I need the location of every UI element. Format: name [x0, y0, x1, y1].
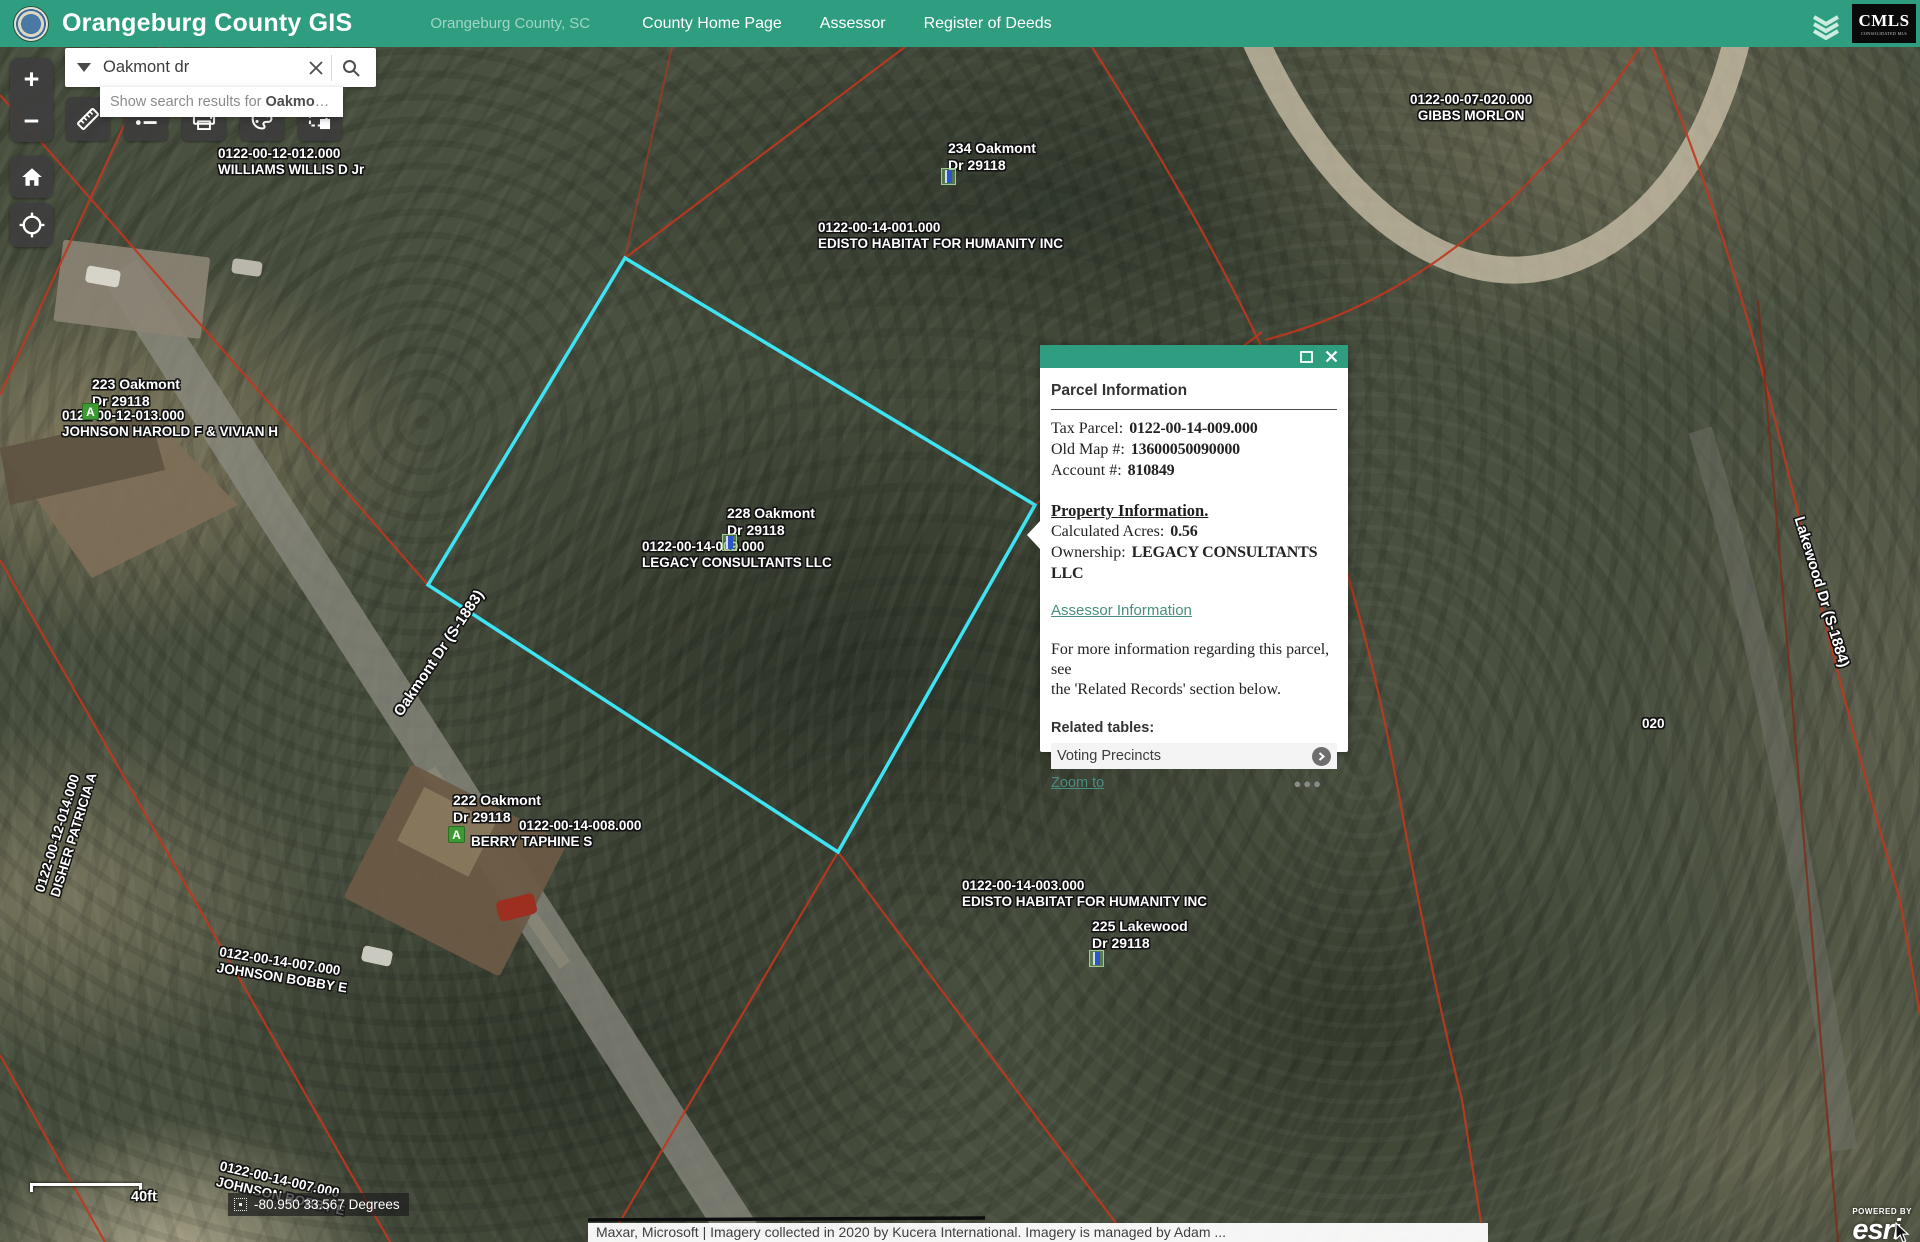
- suggestion-ellipsis: …: [315, 94, 330, 110]
- zoom-to-link[interactable]: Zoom to: [1051, 775, 1104, 791]
- assessor-information-link[interactable]: Assessor Information: [1051, 602, 1192, 619]
- structures-group: [0, 240, 567, 977]
- zoom-in-button[interactable]: +: [10, 58, 53, 100]
- open-related-table-button[interactable]: [1312, 747, 1331, 766]
- field-old-map: Old Map #:13600050090000: [1051, 439, 1337, 460]
- chevron-right-icon: [1317, 752, 1326, 761]
- locate-icon: [19, 212, 45, 238]
- header-right: CMLS CONSOLIDATED MLS: [1810, 4, 1916, 43]
- popup-header: [1040, 345, 1348, 368]
- home-icon: [20, 165, 44, 189]
- field-tax-parcel: Tax Parcel:0122-00-14-009.000: [1051, 418, 1337, 439]
- county-seal-logo: [13, 6, 49, 42]
- mouse-cursor: [1894, 1222, 1910, 1242]
- suggestion-prefix: Show search results for: [110, 94, 262, 110]
- field-account: Account #:810849: [1051, 460, 1337, 481]
- coordinates-widget: -80.950 33.567 Degrees: [228, 1193, 409, 1216]
- field-calculated-acres: Calculated Acres:0.56: [1051, 521, 1337, 542]
- cmls-logo: CMLS CONSOLIDATED MLS: [1852, 4, 1916, 43]
- field-ownership: Ownership:LEGACY CONSULTANTS LLC: [1051, 542, 1337, 584]
- property-information-heading: Property Information.: [1051, 501, 1337, 521]
- popup-title: Parcel Information: [1051, 382, 1337, 400]
- search-suggestion-item[interactable]: Show search results for Oakmo …: [100, 87, 343, 117]
- search-icon: [341, 58, 361, 78]
- coordinates-value: -80.950 33.567 Degrees: [254, 1197, 400, 1212]
- cmls-logo-subtext: CONSOLIDATED MLS: [1861, 31, 1907, 36]
- close-icon[interactable]: [1325, 350, 1338, 363]
- location-subtitle: Orangeburg County, SC: [430, 15, 590, 32]
- home-button[interactable]: [10, 156, 53, 198]
- white-car: [361, 945, 394, 967]
- house-roof: [53, 240, 210, 339]
- zoom-out-button[interactable]: −: [10, 100, 53, 142]
- popup-pointer: [1027, 521, 1040, 549]
- ruler-icon: [75, 106, 101, 132]
- popup-body: Parcel Information Tax Parcel:0122-00-14…: [1040, 368, 1348, 791]
- roads-group: [120, 40, 1845, 1242]
- suggestion-term: Oakmo: [266, 94, 315, 110]
- app-title: Orangeburg County GIS: [62, 9, 352, 38]
- loop-road-surface: [1255, 40, 1737, 270]
- close-icon: [308, 60, 324, 76]
- search-source-dropdown[interactable]: [65, 48, 103, 87]
- oakmont-road-surface: [120, 270, 745, 1242]
- selected-parcel-outline: [428, 258, 1035, 852]
- header-nav: County Home Page Assessor Register of De…: [642, 15, 1052, 33]
- nav-assessor[interactable]: Assessor: [820, 15, 886, 33]
- related-table-row-voting-precincts[interactable]: Voting Precincts: [1051, 743, 1337, 769]
- map-overlay: [0, 0, 1920, 1242]
- zoom-control: + −: [10, 58, 53, 142]
- chevron-down-icon: [77, 63, 91, 72]
- nav-register-of-deeds[interactable]: Register of Deeds: [924, 15, 1052, 33]
- search-widget: [65, 48, 376, 87]
- locate-button[interactable]: [10, 203, 53, 247]
- app-window: Orangeburg County GIS Orangeburg County,…: [0, 0, 1920, 1242]
- popup-footer: Zoom to ●●●: [1051, 775, 1337, 791]
- app-header: Orangeburg County GIS Orangeburg County,…: [0, 0, 1920, 47]
- clear-search-button[interactable]: [301, 53, 331, 83]
- parcel-info-popup: Parcel Information Tax Parcel:0122-00-14…: [1040, 345, 1348, 752]
- layers-icon[interactable]: [1810, 8, 1842, 40]
- coordinates-icon: [234, 1198, 247, 1211]
- scale-bar: [30, 1183, 142, 1192]
- related-table-label: Voting Precincts: [1057, 748, 1161, 764]
- related-tables-heading: Related tables:: [1051, 720, 1337, 736]
- cmls-logo-text: CMLS: [1858, 11, 1909, 31]
- gray-car: [231, 258, 263, 277]
- map-attribution: Maxar, Microsoft | Imagery collected in …: [588, 1223, 1488, 1242]
- more-options-button[interactable]: ●●●: [1293, 776, 1337, 791]
- search-input[interactable]: [103, 53, 301, 83]
- search-button[interactable]: [332, 48, 369, 87]
- lakewood-road-surface: [1700, 430, 1845, 1150]
- nav-county-home-page[interactable]: County Home Page: [642, 15, 782, 33]
- maximize-icon[interactable]: [1300, 351, 1313, 363]
- popup-note: For more information regarding this parc…: [1051, 640, 1337, 700]
- popup-divider: [1051, 409, 1337, 410]
- scale-bar-label: 40ft: [131, 1189, 157, 1205]
